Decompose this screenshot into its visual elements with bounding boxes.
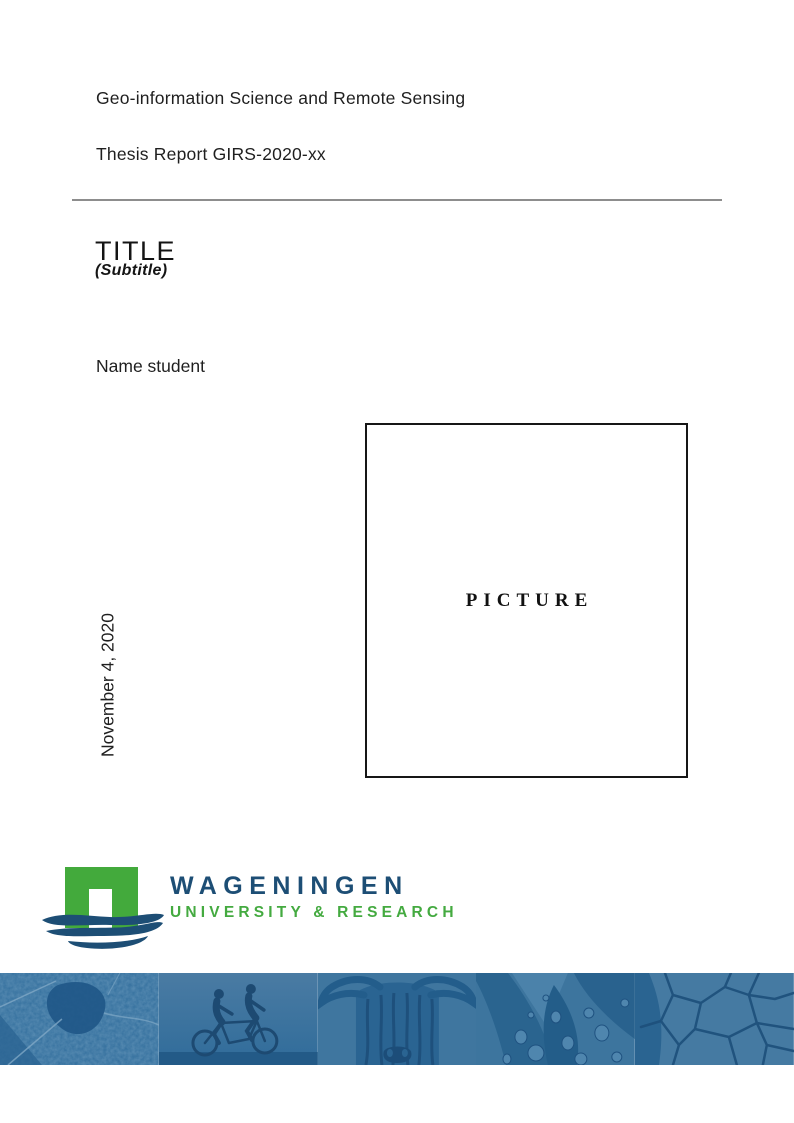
thesis-subtitle: (Subtitle) xyxy=(95,262,167,280)
wur-logo-tagline: UNIVERSITY & RESEARCH xyxy=(170,904,458,922)
water-droplets-photo xyxy=(476,973,635,1065)
picture-placeholder-box: PICTURE xyxy=(365,423,688,778)
highland-cow-photo xyxy=(318,973,477,1065)
aerial-map-photo xyxy=(0,973,159,1065)
wur-logo-wordmark: WAGENINGEN xyxy=(170,872,409,901)
report-date: November 4, 2020 xyxy=(98,613,119,757)
thesis-cover-page: Geo-information Science and Remote Sensi… xyxy=(0,0,794,1123)
program-name: Geo-information Science and Remote Sensi… xyxy=(96,88,465,109)
tandem-cyclists-photo xyxy=(159,973,318,1065)
picture-placeholder-label: PICTURE xyxy=(460,590,594,612)
student-name: Name student xyxy=(96,356,205,377)
report-number-line: Thesis Report GIRS-2020-xx xyxy=(96,144,326,165)
header-divider-rule xyxy=(72,199,722,201)
cracked-earth-photo xyxy=(635,973,794,1065)
photo-banner-strip xyxy=(0,973,794,1065)
wur-logo-arch-icon xyxy=(40,862,168,958)
